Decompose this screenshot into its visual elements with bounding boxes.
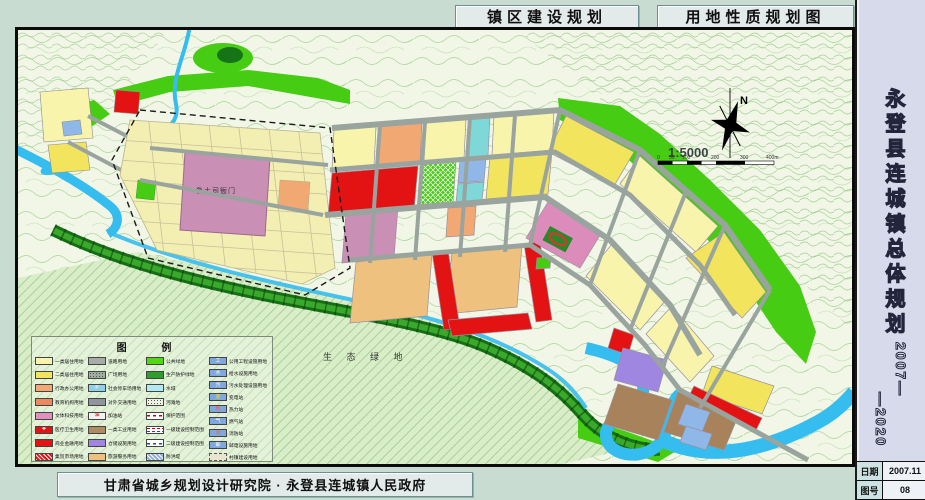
date-label: 日期: [857, 462, 883, 481]
legend-swatch: 污: [209, 381, 227, 389]
legend-item: 公共绿地: [146, 356, 206, 366]
legend-label: 医疗卫生用地: [55, 426, 84, 433]
legend-label: 二类居住用地: [55, 371, 84, 378]
title-construction: 镇区建设规划: [455, 5, 639, 28]
legend-item: 二类居住用地: [35, 370, 85, 380]
legend-column-4: 工公用工程设施用地水给水设施用地污污水处理设施用地变变电站热热力站气燃气站消消防…: [209, 356, 269, 462]
legend-column-3: 公共绿地生产防护绿地水域河滩地保护范围一级建设控制范围二级建设控制范围防洪堤: [146, 356, 206, 462]
legend-swatch: [88, 426, 106, 434]
legend-label: 变电站: [229, 394, 243, 401]
legend-label: 加油站: [108, 412, 122, 419]
footer-bar: 甘肃省城乡规划设计研究院 · 永登县连城镇人民政府: [0, 467, 855, 500]
legend-item: 消消防站: [209, 428, 269, 438]
legend-swatch: [35, 398, 53, 406]
legend-column-2: 道路用地广场用地P社会停车场用地对外交通用地油加油站一类工业用地仓储设施用地旅游…: [88, 356, 143, 462]
svg-text:50: 50: [669, 155, 675, 161]
legend-label: 教育机构用地: [55, 399, 84, 406]
legend-item: 村镇建设用地: [209, 452, 269, 462]
legend-item: 油加油站: [88, 411, 143, 421]
legend-swatch: [146, 357, 164, 365]
legend-swatch: [88, 398, 106, 406]
legend-item: 文体科技用地: [35, 411, 85, 421]
legend-label: 热力站: [229, 406, 243, 413]
legend-swatch: [146, 426, 164, 434]
north-label: N: [740, 95, 748, 107]
legend-label: 生产防护绿地: [166, 371, 195, 378]
legend-swatch: ✚: [35, 426, 53, 434]
legend-swatch: [88, 439, 106, 447]
legend-swatch: P: [88, 384, 106, 392]
legend-item: 一类工业用地: [88, 425, 143, 435]
legend-swatch: 水: [209, 369, 227, 377]
legend-item: 气燃气站: [209, 416, 269, 426]
legend-label: 保护范围: [166, 412, 185, 419]
legend-item: 广场用地: [88, 370, 143, 380]
drawing-info-table: 日期 2007.11 图号 08: [857, 461, 925, 500]
date-value: 2007.11: [883, 462, 925, 481]
sheet-number-value: 08: [883, 481, 925, 500]
legend-label: 公用工程设施用地: [229, 358, 267, 365]
legend-item: 集贸市场用地: [35, 452, 85, 462]
legend-item: 对外交通用地: [88, 397, 143, 407]
legend-item: 工公用工程设施用地: [209, 356, 269, 366]
svg-text:400m: 400m: [766, 155, 779, 161]
sheet-number-label: 图号: [857, 481, 883, 500]
legend-swatch: [146, 371, 164, 379]
legend-label: 道路用地: [108, 358, 127, 365]
legend-swatch: [35, 439, 53, 447]
legend-column-1: 一类居住用地二类居住用地行政办公用地教育机构用地文体科技用地✚医疗卫生用地商业金…: [35, 356, 85, 462]
legend-item: 污污水处理设施用地: [209, 380, 269, 390]
legend-swatch: [88, 453, 106, 461]
legend-label: 污水处理设施用地: [229, 382, 267, 389]
svg-text:200: 200: [711, 155, 720, 161]
legend-swatch: [146, 412, 164, 420]
legend-label: 商业金融用地: [55, 440, 84, 447]
legend-item: 水给水设施用地: [209, 368, 269, 378]
legend-item: 一类居住用地: [35, 356, 85, 366]
legend-label: 防洪堤: [166, 454, 180, 461]
legend-swatch: [209, 453, 227, 461]
legend-swatch: [146, 439, 164, 447]
legend-label: 给水设施用地: [229, 370, 258, 377]
legend-item: 河滩地: [146, 397, 206, 407]
legend-label: 公共绿地: [166, 358, 185, 365]
legend-swatch: 油: [88, 412, 106, 420]
map-canvas: 生 态 绿 地: [15, 27, 855, 467]
plan-title-vertical: 永登县连城镇总体规划: [879, 88, 908, 338]
legend-label: 行政办公用地: [55, 385, 84, 392]
legend-item: P社会停车场用地: [88, 383, 143, 393]
legend-swatch: [35, 384, 53, 392]
legend-item: 热热力站: [209, 404, 269, 414]
title-landuse: 用地性质规划图: [657, 5, 854, 28]
legend-label: 村镇建设用地: [229, 454, 258, 461]
legend-label: 广场用地: [108, 371, 127, 378]
legend-swatch: [146, 384, 164, 392]
legend-label: 燃气站: [229, 418, 243, 425]
legend-item: 商业金融用地: [35, 438, 85, 448]
legend-item: 二级建设控制范围: [146, 438, 206, 448]
plan-years-lower: —2020: [873, 392, 889, 447]
legend-item: 生产防护绿地: [146, 370, 206, 380]
legend-item: ✚医疗卫生用地: [35, 425, 85, 435]
legend-item: 水域: [146, 383, 206, 393]
legend-swatch: 邮: [209, 441, 227, 449]
legend-label: 旅游服务用地: [108, 454, 137, 461]
legend-item: 一级建设控制范围: [146, 425, 206, 435]
legend-swatch: [146, 453, 164, 461]
svg-text:100: 100: [682, 155, 691, 161]
legend-swatch: [35, 453, 53, 461]
legend-swatch: 气: [209, 417, 227, 425]
legend-item: 道路用地: [88, 356, 143, 366]
legend-label: 仓储设施用地: [108, 440, 137, 447]
legend-swatch: [88, 371, 106, 379]
legend-label: 邮电设施用地: [229, 442, 258, 449]
legend-item: 仓储设施用地: [88, 438, 143, 448]
legend-item: 保护范围: [146, 411, 206, 421]
title-block-sidebar: 永登县连城镇总体规划 2007— —2020 日期 2007.11 图号 08: [855, 0, 925, 500]
legend-item: 防洪堤: [146, 452, 206, 462]
legend-label: 一级建设控制范围: [166, 426, 204, 433]
legend-item: 行政办公用地: [35, 383, 85, 393]
svg-text:0: 0: [657, 155, 660, 161]
legend-swatch: 工: [209, 357, 227, 365]
legend-title: 图 例: [35, 339, 269, 354]
legend-label: 水域: [166, 385, 176, 392]
legend-item: 教育机构用地: [35, 397, 85, 407]
legend-swatch: [35, 357, 53, 365]
svg-text:300: 300: [740, 155, 749, 161]
legend-swatch: [35, 412, 53, 420]
legend-item: 变变电站: [209, 392, 269, 402]
legend-label: 一类居住用地: [55, 358, 84, 365]
legend-label: 二级建设控制范围: [166, 440, 204, 447]
legend-label: 对外交通用地: [108, 399, 137, 406]
legend-swatch: 消: [209, 429, 227, 437]
legend-swatch: [146, 398, 164, 406]
planning-sheet: 镇区建设规划 用地性质规划图: [0, 0, 925, 500]
legend-label: 社会停车场用地: [108, 385, 141, 392]
legend-item: 旅游服务用地: [88, 452, 143, 462]
legend-swatch: 热: [209, 405, 227, 413]
legend-label: 文体科技用地: [55, 412, 84, 419]
legend-label: 消防站: [229, 430, 243, 437]
eco-green-label: 生 态 绿 地: [323, 351, 409, 362]
legend: 图 例 一类居住用地二类居住用地行政办公用地教育机构用地文体科技用地✚医疗卫生用…: [31, 336, 273, 462]
legend-label: 河滩地: [166, 399, 180, 406]
legend-label: 一类工业用地: [108, 426, 137, 433]
legend-item: 邮邮电设施用地: [209, 440, 269, 450]
plan-years-upper: 2007—: [893, 342, 909, 397]
legend-label: 集贸市场用地: [55, 454, 84, 461]
legend-swatch: [35, 371, 53, 379]
legend-swatch: [88, 357, 106, 365]
credit-box: 甘肃省城乡规划设计研究院 · 永登县连城镇人民政府: [57, 472, 473, 497]
legend-swatch: 变: [209, 393, 227, 401]
